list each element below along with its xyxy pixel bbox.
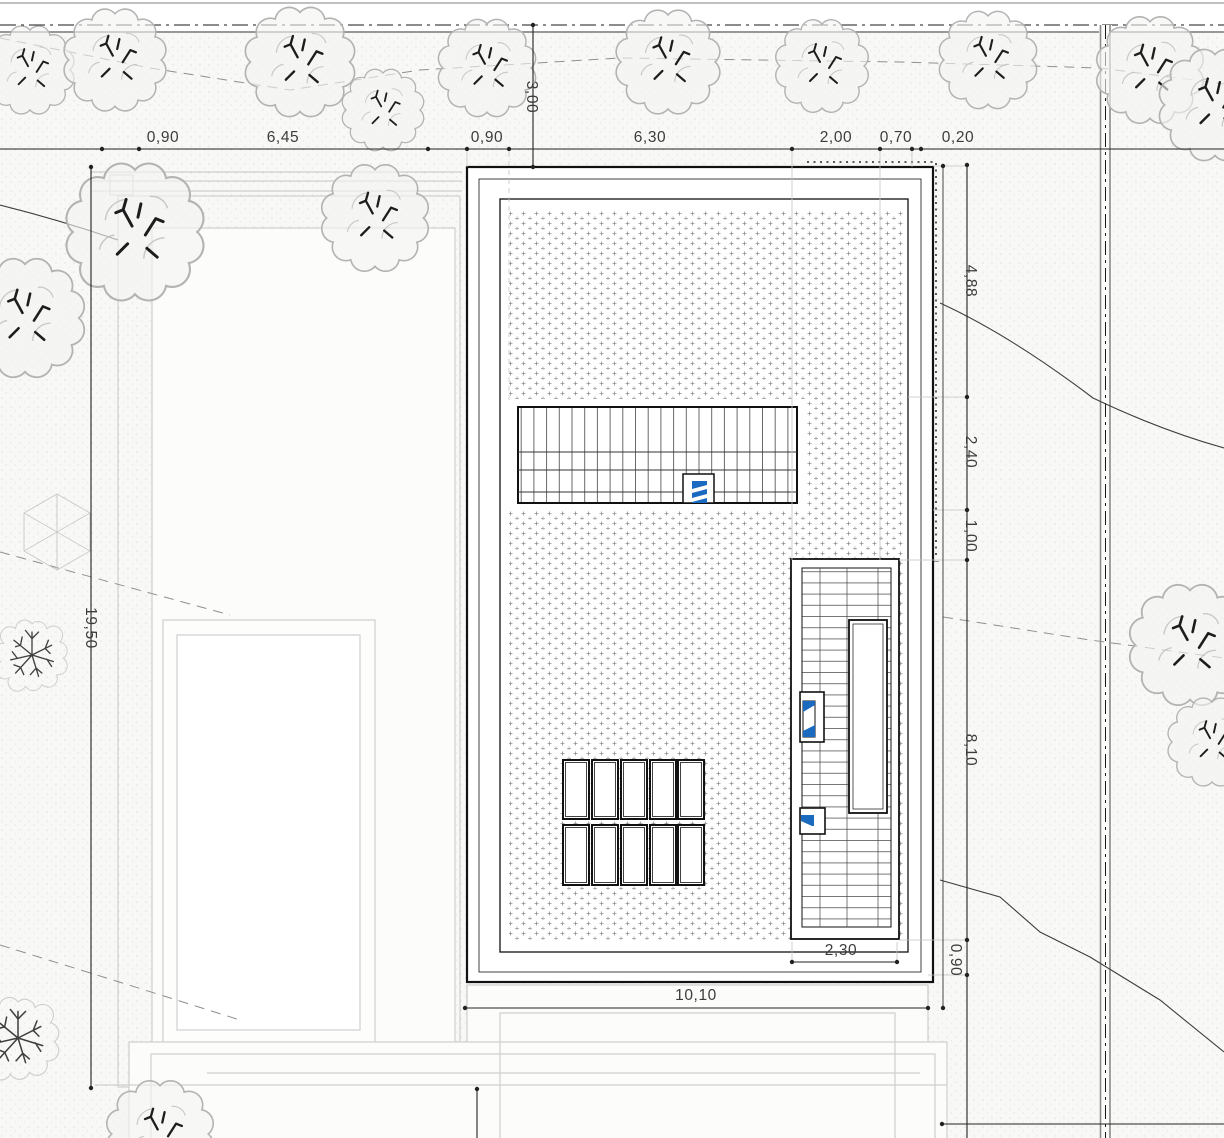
solar-panel bbox=[650, 825, 676, 885]
solar-panel bbox=[678, 825, 704, 885]
tree-icon bbox=[438, 19, 535, 116]
building bbox=[467, 162, 936, 982]
dim-right-0: 4,88 bbox=[962, 265, 979, 298]
solar-panel bbox=[563, 760, 589, 819]
dim-right-1: 2,40 bbox=[962, 436, 979, 469]
pool bbox=[177, 635, 360, 1030]
solar-panel bbox=[592, 760, 618, 819]
dim-bottom: 10,10 bbox=[675, 987, 717, 1004]
dim-right-2: 1,00 bbox=[962, 520, 979, 553]
dim-left: 19,50 bbox=[82, 607, 99, 649]
site-plan-canvas: 0,90 6,45 0,90 6,30 2,00 0,70 0,20 3,00 bbox=[0, 0, 1224, 1138]
louver-skylight-band bbox=[505, 399, 805, 511]
tree-icon bbox=[64, 9, 166, 111]
solar-panel bbox=[621, 760, 647, 819]
tree-icon bbox=[322, 165, 428, 271]
dim-top-6: 0,20 bbox=[942, 129, 975, 146]
dim-setback: 3,00 bbox=[523, 81, 540, 114]
tree-icon bbox=[776, 20, 869, 113]
tree-icon bbox=[1130, 585, 1224, 705]
dim-top-2: 0,90 bbox=[471, 129, 504, 146]
right-street bbox=[1099, 25, 1112, 1138]
top-street bbox=[0, 0, 1224, 33]
tree-icon bbox=[245, 7, 354, 116]
blue-glazing-marker-icon bbox=[800, 808, 825, 834]
tree-icon bbox=[67, 164, 204, 301]
tree-icon bbox=[616, 10, 720, 114]
solar-panel bbox=[592, 825, 618, 885]
dim-right-3: 8,10 bbox=[962, 734, 979, 767]
dim-top-4: 2,00 bbox=[820, 129, 853, 146]
solar-panel bbox=[650, 760, 676, 819]
tree-icon bbox=[342, 69, 423, 150]
solar-panel bbox=[621, 825, 647, 885]
dim-strip: 2,30 bbox=[825, 942, 858, 959]
blue-glazing-marker-icon bbox=[800, 692, 824, 742]
site-plan-drawing: 0,90 6,45 0,90 6,30 2,00 0,70 0,20 3,00 bbox=[0, 0, 1224, 1138]
dim-top-5: 0,70 bbox=[880, 129, 913, 146]
dim-top-0: 0,90 bbox=[147, 129, 180, 146]
solar-panel bbox=[678, 760, 704, 819]
dim-right-4: 0,90 bbox=[947, 944, 964, 977]
tree-icon bbox=[939, 11, 1036, 108]
tree-icon bbox=[0, 26, 74, 114]
solar-panel bbox=[563, 825, 589, 885]
dim-top-1: 6,45 bbox=[267, 129, 300, 146]
blue-glazing-marker-icon bbox=[692, 481, 707, 503]
dim-top-3: 6,30 bbox=[634, 129, 667, 146]
roof-terrace-strip bbox=[791, 559, 899, 939]
